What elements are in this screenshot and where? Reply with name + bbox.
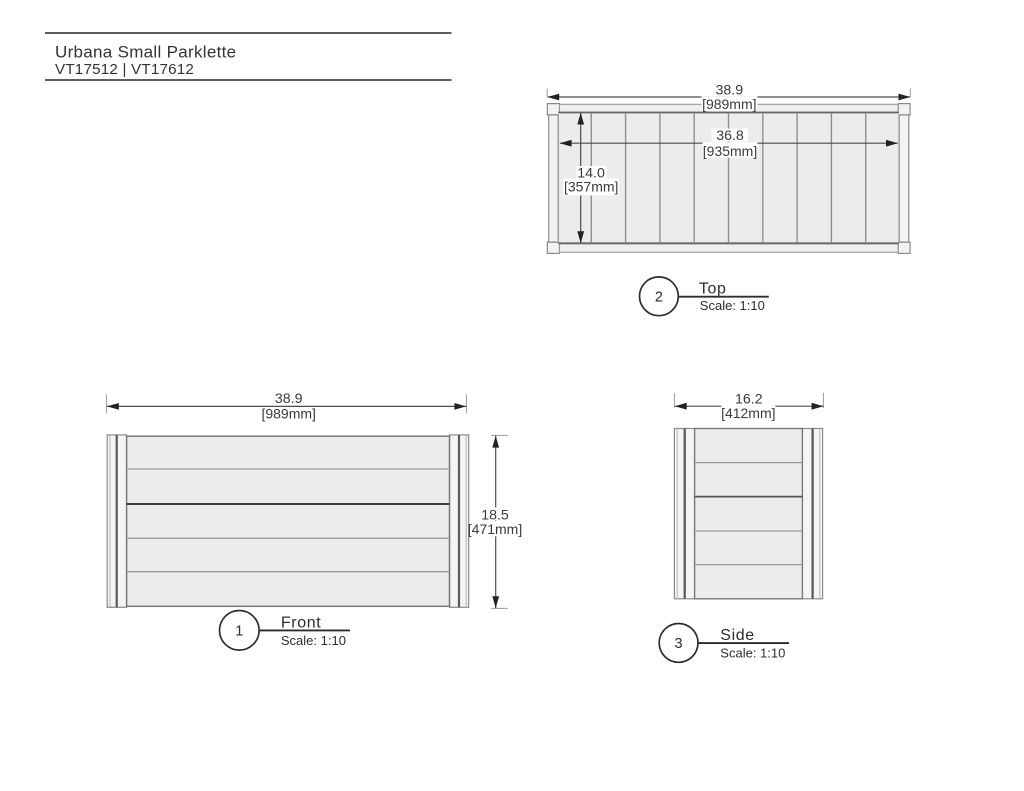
svg-text:[935mm]: [935mm] (703, 143, 757, 159)
svg-text:Scale: 1:10: Scale: 1:10 (720, 646, 785, 661)
svg-text:3: 3 (675, 636, 683, 652)
svg-text:[357mm]: [357mm] (564, 179, 618, 195)
svg-text:[471mm]: [471mm] (468, 521, 522, 537)
svg-text:Side: Side (720, 627, 754, 644)
svg-text:Scale: 1:10: Scale: 1:10 (281, 633, 346, 648)
svg-text:[989mm]: [989mm] (702, 96, 756, 112)
svg-text:VT17512 | VT17612: VT17512 | VT17612 (55, 61, 194, 78)
svg-text:Front: Front (281, 615, 321, 632)
svg-text:[412mm]: [412mm] (721, 405, 775, 421)
svg-text:Top: Top (699, 281, 727, 298)
svg-text:36.8: 36.8 (716, 128, 744, 144)
svg-text:2: 2 (655, 290, 663, 306)
svg-text:[989mm]: [989mm] (261, 405, 315, 421)
svg-text:Urbana Small Parklette: Urbana Small Parklette (55, 43, 236, 62)
svg-text:Scale: 1:10: Scale: 1:10 (700, 298, 765, 313)
svg-text:1: 1 (235, 623, 243, 639)
